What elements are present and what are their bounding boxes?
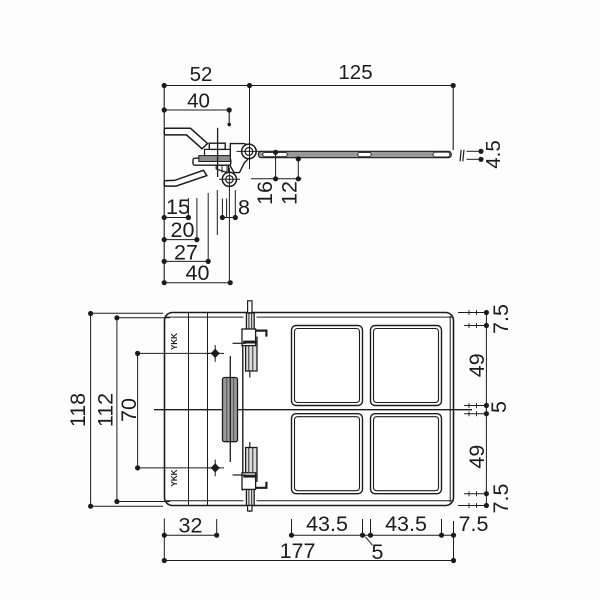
svg-text:15: 15 xyxy=(166,195,190,219)
svg-text:YKK: YKK xyxy=(170,469,179,486)
svg-text:125: 125 xyxy=(338,61,372,84)
svg-text:12: 12 xyxy=(278,181,302,205)
svg-text:16: 16 xyxy=(253,181,277,205)
svg-text:5: 5 xyxy=(372,540,384,564)
svg-text:52: 52 xyxy=(190,63,213,86)
svg-text:5: 5 xyxy=(487,401,511,413)
svg-text:7.5: 7.5 xyxy=(489,484,513,514)
svg-text:32: 32 xyxy=(179,514,203,538)
svg-text:7.5: 7.5 xyxy=(459,512,489,536)
svg-text:112: 112 xyxy=(94,393,118,427)
svg-text:YKK: YKK xyxy=(170,333,179,350)
svg-text:8: 8 xyxy=(238,196,250,220)
svg-text:20: 20 xyxy=(171,218,195,242)
svg-text:7.5: 7.5 xyxy=(489,304,513,334)
svg-text:4.5: 4.5 xyxy=(482,140,505,169)
svg-text:49: 49 xyxy=(465,353,489,377)
svg-text:177: 177 xyxy=(280,539,316,563)
svg-text:43.5: 43.5 xyxy=(385,512,427,536)
svg-text:40: 40 xyxy=(186,261,210,285)
svg-text:49: 49 xyxy=(465,445,489,469)
svg-text:40: 40 xyxy=(187,90,210,113)
svg-text:118: 118 xyxy=(66,393,90,427)
svg-text:70: 70 xyxy=(117,398,141,422)
svg-text:43.5: 43.5 xyxy=(306,512,348,536)
